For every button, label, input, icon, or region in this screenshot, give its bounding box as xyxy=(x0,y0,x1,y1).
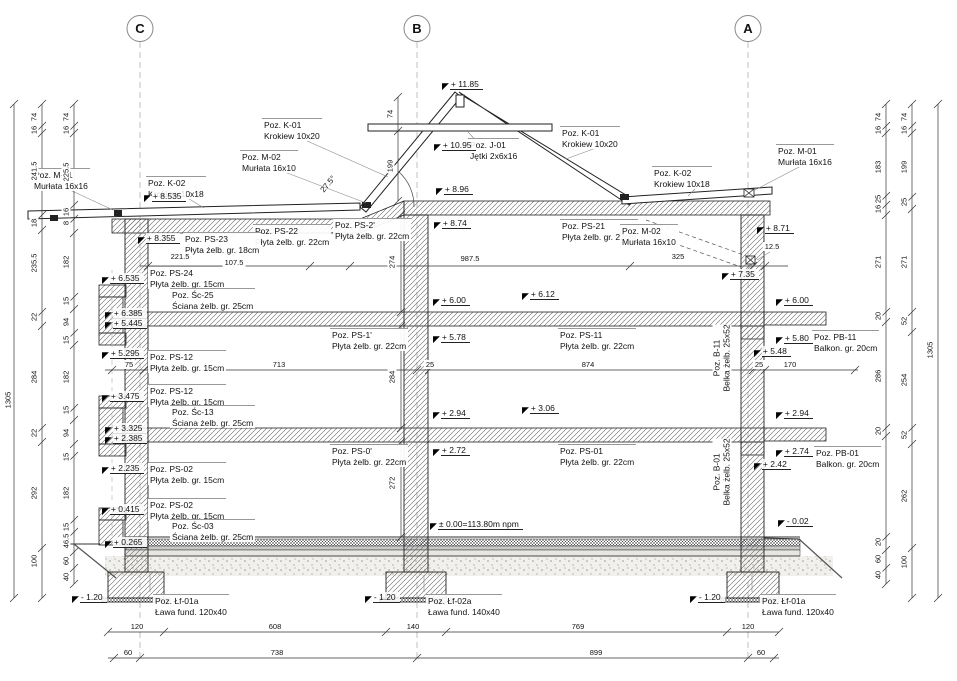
elevation-mark: ◤+ 5.295 xyxy=(102,348,144,359)
dimension-label: 16 xyxy=(62,207,71,217)
elevation-value: ± 0.00=113.80m npm xyxy=(438,519,523,530)
level-triangle-icon: ◤ xyxy=(778,518,785,528)
elevation-value: + 3.475 xyxy=(110,391,144,402)
elevation-value: - 1.20 xyxy=(373,592,400,603)
dimension-label: 60 xyxy=(62,556,71,566)
position-label-line: Poz. K-01 xyxy=(264,120,320,131)
position-label: Poz. PS-12Płyta żelb. gr. 15cm xyxy=(148,384,226,407)
elevation-value: + 8.74 xyxy=(442,218,471,229)
elevation-mark: ◤+ 2.385 xyxy=(105,433,147,444)
level-triangle-icon: ◤ xyxy=(102,506,109,516)
position-label-line: Płyta żelb. gr. 22cm xyxy=(255,237,329,248)
elevation-value: + 6.12 xyxy=(530,289,559,300)
position-label-line: Ława fund. 140x40 xyxy=(428,607,500,618)
dimension-label: 20 xyxy=(874,311,883,321)
slab-ps01 xyxy=(125,428,764,442)
dimension-label: 769 xyxy=(570,622,587,631)
axis-marker-c: C xyxy=(127,15,154,42)
dimension-label: 12.5 xyxy=(763,242,782,251)
dimension-label: 74 xyxy=(874,112,883,122)
dimension-label: 25 xyxy=(424,360,436,369)
elevation-mark: ◤+ 6.00 xyxy=(776,295,813,306)
dimension-label: 94 xyxy=(62,317,71,327)
axis-marker-a: A xyxy=(735,15,762,42)
dimension-label: 18 xyxy=(30,218,39,228)
dimension-label: 94 xyxy=(62,428,71,438)
position-label: Poz. PS-11Płyta żelb. gr. 22cm xyxy=(558,328,636,351)
elevation-mark: ◤+ 8.96 xyxy=(436,184,473,195)
position-label-line: Poz. M-01 xyxy=(778,146,832,157)
dimension-label: 738 xyxy=(269,648,286,657)
beam-label: Poz. B-11Belka żelb. 25x52 xyxy=(713,324,732,391)
level-triangle-icon: ◤ xyxy=(722,271,729,281)
position-label: Poz. K-01Krokiew 10x20 xyxy=(262,118,322,141)
elevation-value: + 5.80 xyxy=(784,333,813,344)
elevation-mark: ◤+ 2.94 xyxy=(776,408,813,419)
level-triangle-icon: ◤ xyxy=(365,594,372,604)
dimension-label: 235.5 xyxy=(30,253,39,274)
position-label-line: Poz. PS-11 xyxy=(560,330,634,341)
level-triangle-icon: ◤ xyxy=(102,393,109,403)
position-label-line: Poz. M-02 xyxy=(622,226,676,237)
slab-ps21 xyxy=(404,201,770,215)
level-triangle-icon: ◤ xyxy=(433,334,440,344)
elevation-mark: ◤+ 0.265 xyxy=(105,537,147,548)
elevation-value: + 5.295 xyxy=(110,348,144,359)
elevation-mark: ◤± 0.00=113.80m npm xyxy=(430,519,523,530)
position-label-line: Balkon. gr. 20cm xyxy=(816,459,879,470)
dimension-label: 292 xyxy=(30,486,39,501)
elevation-value: + 2.385 xyxy=(113,433,147,444)
position-label-line: Ściana żelb. gr. 25cm xyxy=(172,418,253,429)
dimension-label: 74 xyxy=(900,112,909,122)
elevation-value: + 8.71 xyxy=(765,223,794,234)
dimension-label: 874 xyxy=(580,360,597,369)
level-triangle-icon: ◤ xyxy=(776,335,783,345)
dimension-label: 608 xyxy=(267,622,284,631)
dimension-label: 284 xyxy=(30,370,39,385)
dimension-label: 15 xyxy=(62,522,71,532)
elevation-mark: ◤+ 2.72 xyxy=(433,445,470,456)
axis-marker-b: B xyxy=(404,15,431,42)
position-label: Poz. Śc-25Ściana żelb. gr. 25cm xyxy=(170,288,255,311)
level-triangle-icon: ◤ xyxy=(754,461,761,471)
dimension-label: 225.5 xyxy=(62,162,71,183)
position-label-line: Krokiew 10x20 xyxy=(562,139,618,150)
level-triangle-icon: ◤ xyxy=(776,448,783,458)
position-label-line: Poz. Śc-03 xyxy=(172,521,253,532)
level-triangle-icon: ◤ xyxy=(776,297,783,307)
beam-label-line: Belka żelb. 25x52 xyxy=(722,324,732,391)
beam-label: Poz. B-01Belka żelb. 25x52 xyxy=(713,438,732,505)
collar-tie-j01 xyxy=(368,124,552,131)
level-triangle-icon: ◤ xyxy=(105,539,112,549)
beam-label-line: Belka żelb. 25x52 xyxy=(722,438,732,505)
dimension-label: 16 xyxy=(900,125,909,135)
elevation-mark: ◤+ 6.535 xyxy=(102,273,144,284)
dimension-label: 713 xyxy=(271,360,288,369)
dimension-label: 40 xyxy=(874,570,883,580)
position-label: Poz. PS-02Płyta żelb. gr. 15cm xyxy=(148,498,226,521)
elevation-value: + 5.445 xyxy=(113,318,147,329)
position-label-line: Poz. K-01 xyxy=(562,128,618,139)
position-label: Poz. Łf-01aŁawa fund. 120x40 xyxy=(760,594,836,617)
dimension-label: 271 xyxy=(874,255,883,270)
position-label-line: Poz. PS-02 xyxy=(150,500,224,511)
elevation-mark: ◤+ 3.06 xyxy=(522,403,559,414)
dimension-label: 52 xyxy=(900,430,909,440)
wall-b xyxy=(404,215,428,572)
level-triangle-icon: ◤ xyxy=(690,594,697,604)
position-label: Poz. PS-01Płyta żelb. gr. 22cm xyxy=(558,444,636,467)
elevation-value: + 7.35 xyxy=(730,269,759,280)
position-label-line: Poz. K-02 xyxy=(148,178,204,189)
position-label-line: Poz. Łf-02a xyxy=(428,596,500,607)
position-label-line: Poz. PS-12 xyxy=(150,352,224,363)
dimension-label: 25 xyxy=(900,197,909,207)
elevation-mark: ◤+ 2.235 xyxy=(102,463,144,474)
position-label-line: Ściana żelb. gr. 25cm xyxy=(172,532,253,543)
position-label-line: Murłata 16x10 xyxy=(622,237,676,248)
position-label-line: Krokiew 10x18 xyxy=(654,179,710,190)
level-triangle-icon: ◤ xyxy=(436,186,443,196)
elevation-value: + 11.85 xyxy=(450,79,483,90)
position-label: Poz. PB-01Balkon. gr. 20cm xyxy=(814,446,881,469)
dimension-label: 170 xyxy=(782,360,799,369)
position-label: Poz. PS-1'Płyta żelb. gr. 22cm xyxy=(330,328,408,351)
position-label-line: Poz. PS-1' xyxy=(332,330,406,341)
level-triangle-icon: ◤ xyxy=(105,435,112,445)
elevation-mark: ◤- 1.20 xyxy=(690,592,725,603)
position-label-line: Płyta żelb. gr. 18cm xyxy=(185,245,259,256)
dimension-label: 120 xyxy=(129,622,146,631)
position-label: Poz. Śc-13Ściana żelb. gr. 25cm xyxy=(170,405,255,428)
position-label-line: Poz. PS-2' xyxy=(335,220,409,231)
elevation-value: + 5.78 xyxy=(441,332,470,343)
level-triangle-icon: ◤ xyxy=(442,81,449,91)
elevation-mark: ◤+ 2.74 xyxy=(776,446,813,457)
elevation-value: + 8.355 xyxy=(146,233,180,244)
position-label: Poz. M-02Murłata 16x10 xyxy=(240,150,298,173)
dimension-label: 100 xyxy=(900,555,909,570)
dimension-label: 15 xyxy=(62,296,71,306)
elevation-value: - 0.02 xyxy=(786,516,813,527)
dimension-label: 74 xyxy=(30,112,39,122)
position-label-line: Płyta żelb. gr. 15cm xyxy=(150,363,224,374)
level-triangle-icon: ◤ xyxy=(434,142,441,152)
dimension-label: 8 xyxy=(62,220,71,226)
dimension-label: 74 xyxy=(386,109,395,119)
level-triangle-icon: ◤ xyxy=(776,410,783,420)
dimension-label: 25 xyxy=(874,194,883,204)
dimension-label: 199 xyxy=(386,159,395,174)
position-label-line: Poz. Łf-01a xyxy=(762,596,834,607)
position-label: Poz. PS-02Płyta żelb. gr. 15cm xyxy=(148,462,226,485)
position-label-line: Płyta żelb. gr. 15cm xyxy=(150,475,224,486)
level-triangle-icon: ◤ xyxy=(522,405,529,415)
dimension-label: 15 xyxy=(62,335,71,345)
position-label: Poz. M-01Murłata 16x16 xyxy=(776,144,834,167)
elevation-mark: ◤+ 10.95 xyxy=(434,140,476,151)
dimension-label: 182 xyxy=(62,486,71,501)
elevation-mark: ◤+ 8.355 xyxy=(138,233,180,244)
dimension-label: 16 xyxy=(62,125,71,135)
position-label-line: Poz. PS-02 xyxy=(150,464,224,475)
dimension-label: 183 xyxy=(874,160,883,175)
elevation-mark: ◤- 0.02 xyxy=(778,516,813,527)
elevation-mark: ◤+ 3.475 xyxy=(102,391,144,402)
elevation-value: + 10.95 xyxy=(442,140,476,151)
position-label-line: Poz. J-01 xyxy=(470,140,517,151)
position-label-line: Poz. PS-12 xyxy=(150,386,224,397)
elevation-value: + 8.535 xyxy=(152,191,186,202)
dimension-label: 182 xyxy=(62,370,71,385)
elevation-value: + 6.00 xyxy=(441,295,470,306)
dimension-label: 16 xyxy=(874,125,883,135)
elevation-mark: ◤- 1.20 xyxy=(365,592,400,603)
dimension-label: 241.5 xyxy=(30,161,39,182)
position-label-line: Płyta żelb. gr. 22cm xyxy=(560,341,634,352)
position-label-line: Płyta żelb. gr. 22cm xyxy=(335,231,409,242)
level-triangle-icon: ◤ xyxy=(433,447,440,457)
position-label-line: Płyta żelb. gr. 22cm xyxy=(332,341,406,352)
dimension-label: 100 xyxy=(30,554,39,569)
rafter-k02-left xyxy=(28,203,360,219)
position-label: Poz. PS-22Płyta żelb. gr. 22cm xyxy=(253,224,331,247)
elevation-value: - 1.20 xyxy=(698,592,725,603)
level-triangle-icon: ◤ xyxy=(72,594,79,604)
position-label-line: Poz. PS-23 xyxy=(185,234,259,245)
dimension-label: 987.5 xyxy=(459,254,482,263)
dimension-label: 22 xyxy=(30,428,39,438)
elevation-mark: ◤+ 8.74 xyxy=(434,218,471,229)
elevation-value: + 2.94 xyxy=(784,408,813,419)
position-label: Poz. K-02Krokiew 10x18 xyxy=(652,166,712,189)
position-label-line: Balkon. gr. 20cm xyxy=(814,343,877,354)
position-label: Poz. PS-0'Płyta żelb. gr. 22cm xyxy=(330,444,408,467)
level-triangle-icon: ◤ xyxy=(522,291,529,301)
elevation-mark: ◤+ 7.35 xyxy=(722,269,759,280)
position-label-line: Poz. PS-24 xyxy=(150,268,224,279)
elevation-value: + 6.535 xyxy=(110,273,144,284)
level-triangle-icon: ◤ xyxy=(138,235,145,245)
position-label: Poz. PB-11Balkon. gr. 20cm xyxy=(812,330,879,353)
position-label-line: Poz. M-02 xyxy=(242,152,296,163)
position-label-line: Ława fund. 120x40 xyxy=(155,607,227,618)
dimension-label: 325 xyxy=(670,252,687,261)
level-triangle-icon: ◤ xyxy=(105,320,112,330)
position-label: Poz. PS-2'Płyta żelb. gr. 22cm xyxy=(333,218,411,241)
elevation-value: + 5.48 xyxy=(762,346,791,357)
position-label-line: Poz. Śc-13 xyxy=(172,407,253,418)
dimension-label: 120 xyxy=(740,622,757,631)
position-label-line: Poz. PS-22 xyxy=(255,226,329,237)
dimension-label: 75 xyxy=(123,360,135,369)
dimension-label: 60 xyxy=(874,554,883,564)
elevation-value: + 0.415 xyxy=(110,504,144,515)
position-label-line: Płyta żelb. gr. 22cm xyxy=(332,457,406,468)
position-label-line: Płyta żelb. gr. 22cm xyxy=(560,457,634,468)
dimension-label: 140 xyxy=(405,622,422,631)
elevation-mark: ◤+ 0.415 xyxy=(102,504,144,515)
position-label-line: Poz. PB-01 xyxy=(816,448,879,459)
level-triangle-icon: ◤ xyxy=(757,225,764,235)
dimension-label: 272 xyxy=(388,476,397,491)
level-triangle-icon: ◤ xyxy=(102,275,109,285)
position-label-line: Ława fund. 120x40 xyxy=(762,607,834,618)
level-triangle-icon: ◤ xyxy=(433,297,440,307)
elevation-value: + 2.235 xyxy=(110,463,144,474)
position-label-line: Murłata 16x10 xyxy=(242,163,296,174)
position-label-line: Poz. PS-01 xyxy=(560,446,634,457)
dimension-label: 22 xyxy=(30,312,39,322)
position-label-line: Poz. K-02 xyxy=(654,168,710,179)
elevation-mark: ◤+ 6.00 xyxy=(433,295,470,306)
level-triangle-icon: ◤ xyxy=(754,348,761,358)
elevation-value: + 0.265 xyxy=(113,537,147,548)
position-label-line: Jętki 2x6x16 xyxy=(470,151,517,162)
elevation-mark: ◤+ 2.42 xyxy=(754,459,791,470)
level-triangle-icon: ◤ xyxy=(430,521,437,531)
position-label: Poz. M-02Murłata 16x10 xyxy=(620,224,678,247)
balcony-pb11 xyxy=(764,312,826,325)
level-triangle-icon: ◤ xyxy=(433,410,440,420)
elevation-mark: ◤+ 5.80 xyxy=(776,333,813,344)
dimension-label: 40 xyxy=(62,572,71,582)
elevation-value: + 3.06 xyxy=(530,403,559,414)
position-label: Poz. K-01Krokiew 10x20 xyxy=(560,126,620,149)
position-label: Poz. PS-12Płyta żelb. gr. 15cm xyxy=(148,350,226,373)
elevation-value: - 1.20 xyxy=(80,592,107,603)
level-triangle-icon: ◤ xyxy=(144,193,151,203)
elevation-value: + 2.72 xyxy=(441,445,470,456)
dimension-label: 221.5 xyxy=(169,252,192,261)
dimension-label: 274 xyxy=(388,255,397,270)
position-label: Poz. Łf-02aŁawa fund. 140x40 xyxy=(426,594,502,617)
position-label: Poz. PS-24Płyta żelb. gr. 15cm xyxy=(148,266,226,289)
elevation-mark: ◤+ 5.48 xyxy=(754,346,791,357)
dimension-label: 15 xyxy=(62,452,71,462)
position-label-line: Poz. Śc-25 xyxy=(172,290,253,301)
elevation-mark: ◤+ 5.78 xyxy=(433,332,470,343)
position-label-line: Poz. PS-0' xyxy=(332,446,406,457)
dimension-label: 52 xyxy=(900,316,909,326)
elevation-value: + 6.00 xyxy=(784,295,813,306)
elevation-mark: ◤- 1.20 xyxy=(72,592,107,603)
level-triangle-icon: ◤ xyxy=(102,350,109,360)
ridge-detail xyxy=(456,95,464,107)
slab-ps11 xyxy=(125,312,764,326)
elevation-mark: ◤+ 8.535 xyxy=(144,191,186,202)
dimension-label: 199 xyxy=(900,160,909,175)
position-label: Poz. Śc-03Ściana żelb. gr. 25cm xyxy=(170,519,255,542)
position-label: Poz. PS-23Płyta żelb. gr. 18cm xyxy=(183,232,261,255)
elevation-mark: ◤+ 8.71 xyxy=(757,223,794,234)
dimension-label: 20 xyxy=(874,537,883,547)
dimension-label: 271 xyxy=(900,255,909,270)
elevation-mark: ◤+ 2.94 xyxy=(433,408,470,419)
dimension-label: 1305 xyxy=(4,391,13,410)
dimension-label: 20 xyxy=(874,426,883,436)
level-triangle-icon: ◤ xyxy=(434,220,441,230)
dimension-label: 74 xyxy=(62,112,71,122)
elevation-mark: ◤+ 11.85 xyxy=(442,79,483,90)
position-label: Poz. Łf-01aŁawa fund. 120x40 xyxy=(153,594,229,617)
elevation-value: + 2.94 xyxy=(441,408,470,419)
dimension-label: 25 xyxy=(753,360,765,369)
dimension-label: 286 xyxy=(874,369,883,384)
dimension-label: 46.5 xyxy=(62,533,71,550)
dimension-label: 182 xyxy=(62,255,71,270)
position-label-line: Ściana żelb. gr. 25cm xyxy=(172,301,253,312)
balcony-pb01 xyxy=(764,428,826,441)
dimension-label: 1305 xyxy=(926,341,935,360)
dimension-label: 107.5 xyxy=(223,258,246,267)
dimension-label: 262 xyxy=(900,489,909,504)
dimension-label: 16 xyxy=(874,204,883,214)
elevation-mark: ◤+ 5.445 xyxy=(105,318,147,329)
dimension-label: 15 xyxy=(62,405,71,415)
dimension-label: 60 xyxy=(122,648,134,657)
elevation-value: + 2.42 xyxy=(762,459,791,470)
dimension-label: 254 xyxy=(900,373,909,388)
elevation-value: + 2.74 xyxy=(784,446,813,457)
position-label-line: Poz. PB-11 xyxy=(814,332,877,343)
dimension-label: 899 xyxy=(588,648,605,657)
elevation-mark: ◤+ 6.12 xyxy=(522,289,559,300)
dimension-label: 60 xyxy=(755,648,767,657)
position-label-line: Krokiew 10x20 xyxy=(264,131,320,142)
position-label: Poz. J-01Jętki 2x6x16 xyxy=(468,138,519,161)
position-label-line: Murłata 16x16 xyxy=(778,157,832,168)
section-drawing-sheet: CBA Poz. K-01Krokiew 10x20Poz. M-02Murła… xyxy=(0,0,957,681)
position-label-line: Poz. Łf-01a xyxy=(155,596,227,607)
level-triangle-icon: ◤ xyxy=(102,465,109,475)
dimension-label: 284 xyxy=(388,370,397,385)
dimension-label: 16 xyxy=(30,125,39,135)
elevation-value: + 8.96 xyxy=(444,184,473,195)
